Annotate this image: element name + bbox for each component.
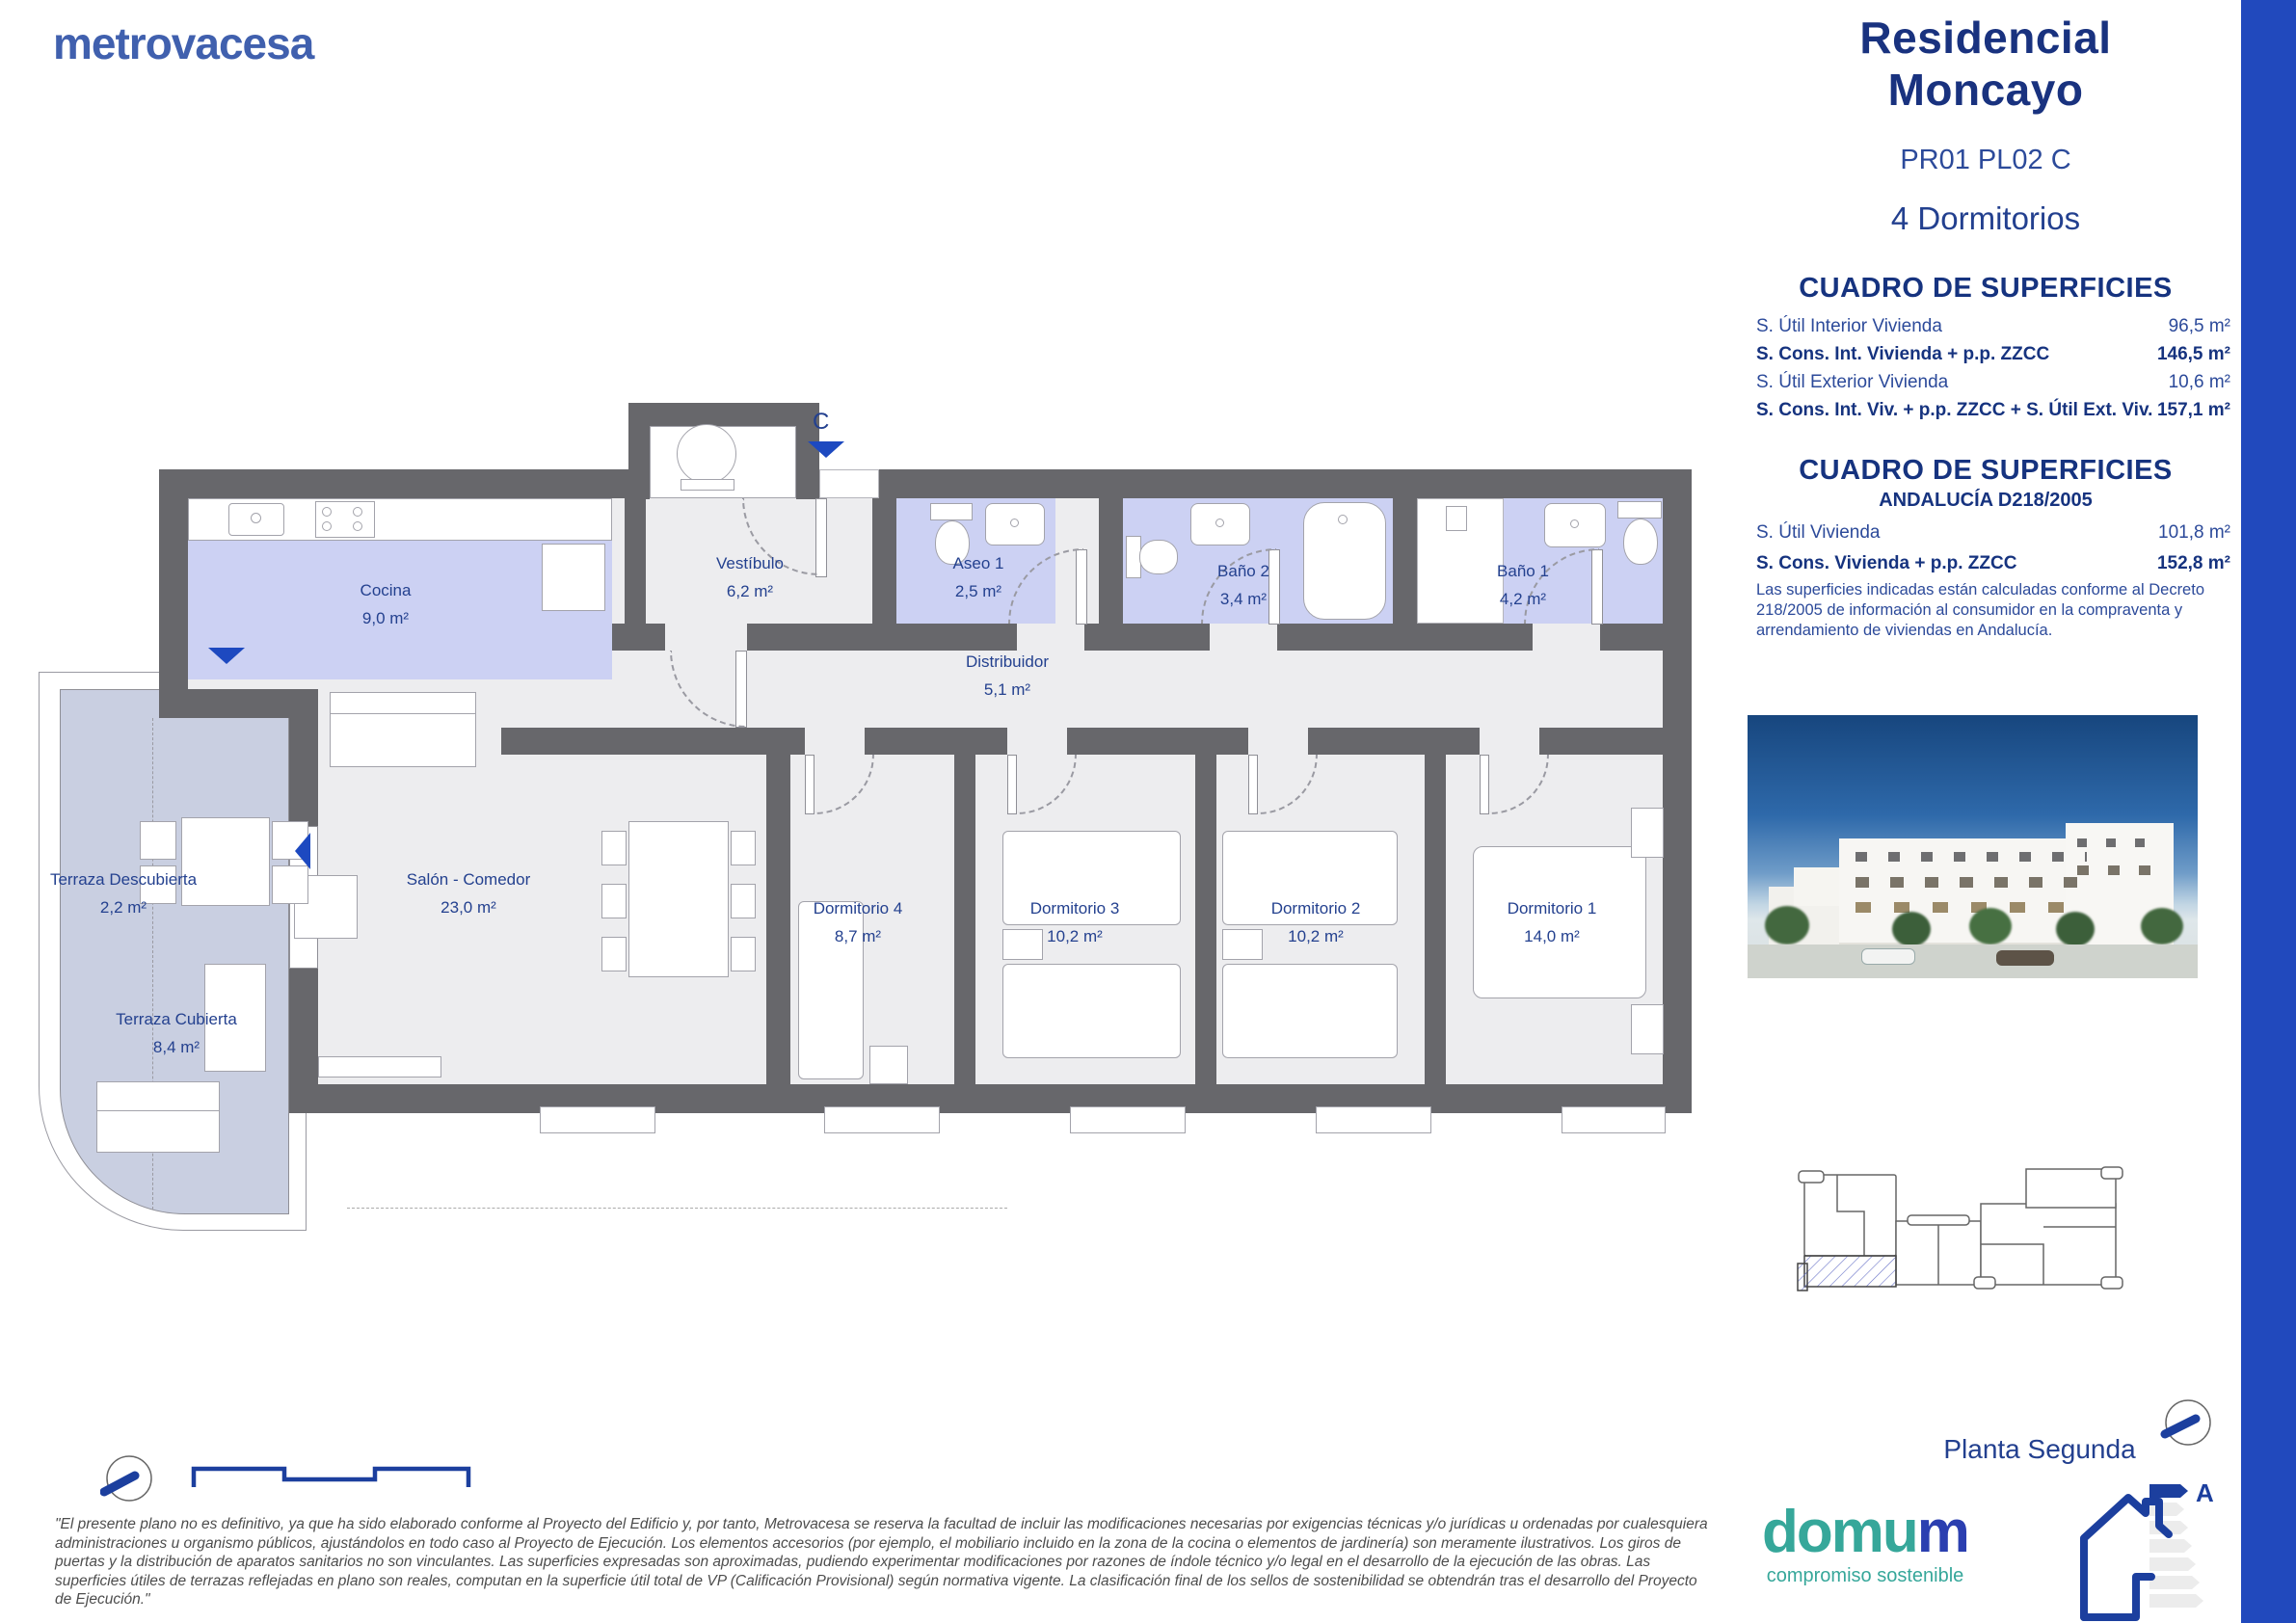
window: [1070, 1106, 1186, 1133]
brochure-page: { "page": {"accent_bar_color": "#2149bd"…: [0, 0, 2296, 1623]
room-label-bano1: Baño 14,2 m²: [1497, 557, 1549, 613]
room-label-dormitorio4: Dormitorio 48,7 m²: [814, 894, 903, 950]
room-label-dormitorio1: Dormitorio 114,0 m²: [1508, 894, 1597, 950]
room-label-salon: Salón - Comedor23,0 m²: [407, 865, 531, 921]
tv-unit: [318, 1056, 441, 1078]
dining-table: [628, 821, 729, 977]
chair: [272, 865, 308, 904]
chair: [601, 884, 627, 918]
window: [824, 1106, 940, 1133]
shower-drain-icon: [1446, 506, 1467, 531]
domum-logo: domum compromiso sostenible: [1749, 1502, 1981, 1587]
room-label-bano2: Baño 23,4 m²: [1217, 557, 1269, 613]
legal-disclaimer: "El presente plano no es definitivo, ya …: [55, 1515, 1708, 1610]
floor-plan: C Cocina9,0 m² Vestíbulo6,2 m² Aseo 12,5…: [0, 0, 2296, 1623]
scale-bar: [191, 1461, 472, 1492]
room-label-dormitorio2: Dormitorio 210,2 m²: [1271, 894, 1361, 950]
window: [540, 1106, 655, 1133]
chair: [731, 831, 756, 865]
nightstand: [1631, 1004, 1664, 1054]
floor-caption: Planta Segunda: [1943, 1434, 2135, 1465]
window: [1562, 1106, 1666, 1133]
window: [1316, 1106, 1431, 1133]
chair: [731, 884, 756, 918]
projection-dashed-line: [347, 1208, 1007, 1209]
sofa: [330, 692, 476, 767]
north-compass-icon: [100, 1450, 158, 1507]
toilet-icon: [1139, 540, 1178, 574]
north-compass-icon: [2159, 1394, 2217, 1451]
toilet-icon: [1617, 501, 1662, 519]
bed: [1002, 964, 1181, 1058]
kitchen-door-arrow-icon: [208, 648, 245, 664]
energy-rating-icon: A: [2069, 1471, 2238, 1623]
nightstand: [1631, 808, 1664, 858]
toilet-icon: [930, 503, 973, 520]
entrance-letter: C: [813, 409, 829, 436]
bed: [1222, 964, 1398, 1058]
domum-logo-accent: m: [1917, 1499, 1968, 1565]
domum-tagline: compromiso sostenible: [1749, 1565, 1981, 1587]
chair: [601, 831, 627, 865]
room-label-vestibulo: Vestíbulo6,2 m²: [716, 549, 784, 605]
room-label-distribuidor: Distribuidor5,1 m²: [966, 648, 1049, 704]
entrance-arrow-icon: [808, 441, 844, 458]
nightstand: [869, 1046, 908, 1084]
toilet-icon: [1623, 519, 1658, 565]
boiler-icon: [677, 424, 736, 484]
nightstand: [1222, 929, 1263, 960]
terrace-door-arrow-icon: [295, 833, 310, 869]
terrace-sofa: [96, 1081, 220, 1153]
room-label-terraza-descubierta: Terraza Descubierta2,2 m²: [50, 865, 197, 921]
fridge: [542, 544, 605, 611]
chair: [140, 821, 176, 860]
room-label-aseo1: Aseo 12,5 m²: [953, 549, 1004, 605]
room-label-terraza-cubierta: Terraza Cubierta8,4 m²: [116, 1005, 237, 1061]
chair: [601, 937, 627, 971]
chair: [731, 937, 756, 971]
room-label-dormitorio3: Dormitorio 310,2 m²: [1030, 894, 1120, 950]
domum-logo-main: domu: [1762, 1499, 1917, 1565]
energy-rating-letter: A: [2196, 1478, 2214, 1508]
room-label-cocina: Cocina9,0 m²: [360, 576, 412, 632]
